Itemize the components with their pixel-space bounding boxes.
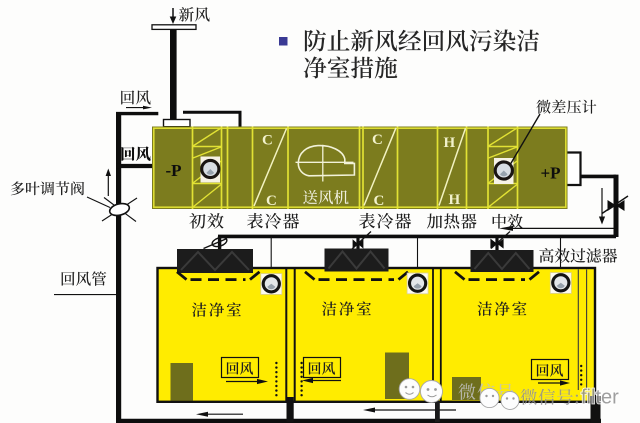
svg-text:C: C <box>266 193 277 209</box>
svg-text:H: H <box>444 135 456 151</box>
svg-text:filter: filter <box>581 387 619 409</box>
svg-text:C: C <box>372 132 383 148</box>
svg-text:C: C <box>374 193 385 209</box>
svg-text:+P: +P <box>541 164 561 183</box>
svg-text:H: H <box>449 192 461 208</box>
svg-text:C: C <box>262 133 273 149</box>
svg-text:-P: -P <box>166 161 182 180</box>
